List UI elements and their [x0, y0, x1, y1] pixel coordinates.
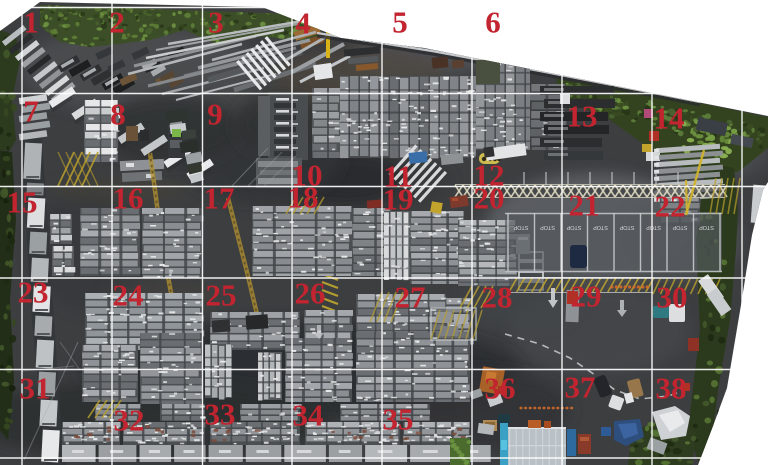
svg-text:32: 32 — [114, 402, 145, 437]
svg-text:4: 4 — [295, 5, 311, 40]
svg-text:21: 21 — [569, 187, 600, 222]
svg-text:31: 31 — [20, 370, 51, 405]
svg-text:33: 33 — [205, 396, 236, 431]
svg-text:16: 16 — [113, 180, 144, 215]
svg-text:STOP: STOP — [699, 224, 714, 230]
svg-text:STOP: STOP — [566, 224, 581, 230]
svg-text:STOP: STOP — [619, 224, 634, 230]
svg-text:36: 36 — [485, 370, 516, 405]
svg-text:9: 9 — [207, 96, 223, 131]
svg-text:8: 8 — [110, 96, 126, 131]
svg-text:13: 13 — [567, 98, 598, 133]
svg-text:5: 5 — [392, 4, 408, 39]
svg-text:28: 28 — [482, 279, 513, 314]
svg-text:29: 29 — [571, 278, 602, 313]
svg-text:25: 25 — [206, 277, 237, 312]
svg-text:1: 1 — [23, 4, 39, 39]
svg-text:6: 6 — [485, 4, 501, 39]
svg-text:2: 2 — [109, 4, 125, 39]
svg-text:35: 35 — [383, 401, 414, 436]
svg-text:STOP: STOP — [540, 224, 555, 230]
svg-text:23: 23 — [18, 274, 49, 309]
svg-text:30: 30 — [657, 279, 688, 314]
svg-text:27: 27 — [395, 279, 426, 314]
svg-text:17: 17 — [204, 180, 235, 215]
svg-text:15: 15 — [7, 184, 38, 219]
svg-text:38: 38 — [656, 370, 687, 405]
svg-text:STOP: STOP — [513, 224, 528, 230]
svg-text:7: 7 — [23, 93, 39, 128]
svg-text:14: 14 — [654, 100, 685, 135]
svg-text:24: 24 — [113, 277, 144, 312]
svg-text:37: 37 — [565, 369, 596, 404]
svg-text:34: 34 — [293, 397, 324, 432]
svg-text:STOP: STOP — [646, 224, 661, 230]
svg-text:26: 26 — [295, 275, 326, 310]
svg-text:19: 19 — [383, 181, 414, 216]
svg-text:20: 20 — [474, 180, 505, 215]
svg-text:3: 3 — [208, 4, 224, 39]
svg-text:STOP: STOP — [593, 224, 608, 230]
svg-text:STOP: STOP — [672, 224, 687, 230]
svg-text:22: 22 — [655, 188, 686, 223]
svg-text:18: 18 — [288, 179, 319, 214]
